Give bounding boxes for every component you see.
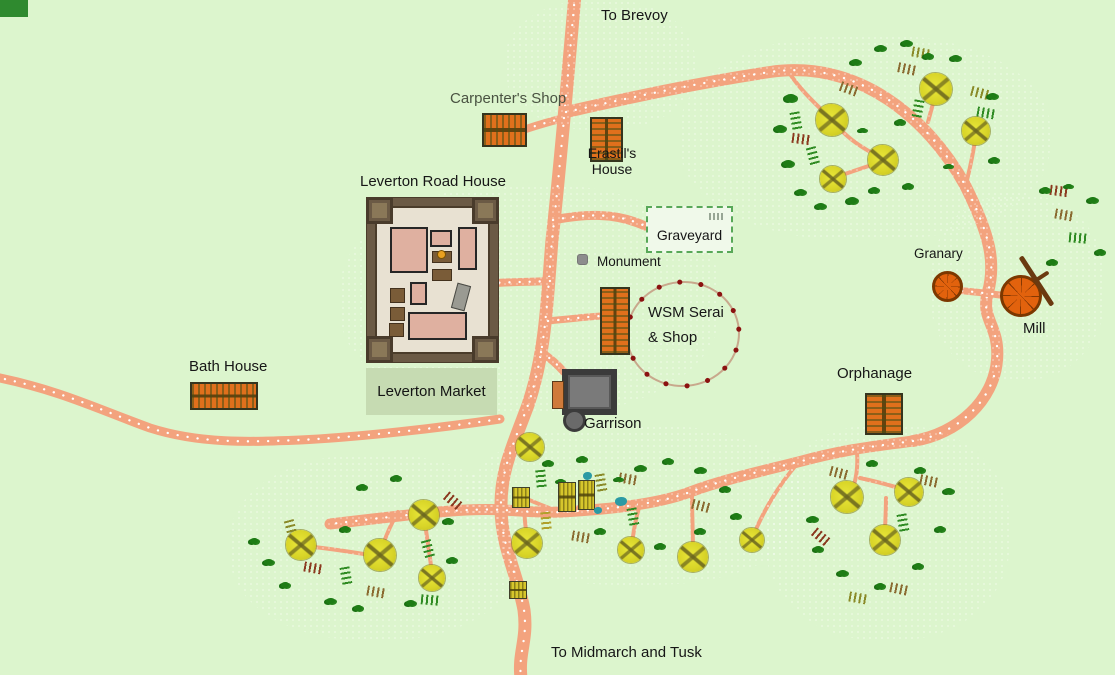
bush-icon: [1088, 197, 1097, 203]
label-monument: Monument: [597, 254, 661, 269]
garrison-round-tower: [563, 409, 586, 432]
tree-icon: [419, 565, 445, 591]
bush-icon: [783, 160, 793, 167]
bush-icon: [847, 197, 857, 204]
bush-icon: [341, 526, 349, 532]
bush-icon: [544, 460, 552, 466]
tree-icon: [870, 525, 900, 555]
bush-icon: [936, 526, 944, 532]
bush-icon: [444, 518, 452, 524]
granary-icon: [932, 271, 963, 302]
bush-icon: [392, 475, 400, 481]
roadhouse-room: [390, 227, 428, 273]
crop-rows-icon: [421, 594, 440, 606]
leverton-market-label: Leverton Market: [377, 383, 485, 400]
tree-icon: [740, 528, 764, 552]
bush-icon: [990, 157, 998, 163]
leverton-town-map: Leverton Market Graveyard To Brevoy Carp…: [0, 0, 1115, 675]
label-granary: Granary: [914, 246, 963, 261]
bush-icon: [775, 125, 785, 132]
bush-icon: [326, 598, 335, 604]
graveyard-label: Graveyard: [648, 227, 731, 243]
bush-icon: [578, 456, 586, 462]
label-leverton-road-house: Leverton Road House: [360, 174, 506, 191]
leverton-market-area: Leverton Market: [366, 368, 497, 415]
tombstone-mark: [721, 213, 723, 220]
roadhouse-tower-se: [472, 336, 499, 363]
label-wsm-serai-line2: & Shop: [648, 325, 724, 350]
tombstone-mark: [709, 213, 711, 220]
bush-icon: [876, 45, 885, 51]
bush-icon: [838, 570, 847, 576]
carpenters-shop-building: [482, 113, 527, 147]
bush-icon: [732, 513, 740, 519]
farm-cottage: [578, 480, 595, 510]
garrison-leanto: [552, 381, 564, 409]
tree-icon: [618, 537, 644, 563]
bush-icon: [896, 119, 904, 125]
roadhouse-tower-ne: [472, 197, 499, 224]
label-bath-house: Bath House: [189, 359, 267, 376]
roadhouse-room: [408, 312, 467, 340]
tree-icon: [820, 166, 846, 192]
bush-icon: [814, 546, 822, 552]
label-erastils-house-line1: Erastil's: [567, 146, 657, 162]
graveyard-area: Graveyard: [646, 206, 733, 253]
crop-rows-icon: [535, 470, 547, 489]
bush-icon: [944, 488, 953, 494]
bush-icon: [636, 465, 645, 471]
farm-cottage: [512, 487, 530, 508]
tombstone-icons: [709, 213, 723, 220]
bush-icon: [596, 528, 604, 534]
tree-icon: [962, 117, 990, 145]
roadhouse-bench: [390, 288, 405, 303]
bush-icon: [870, 187, 878, 193]
roadhouse-room: [430, 230, 452, 247]
label-carpenters-shop: Carpenter's Shop: [450, 91, 566, 108]
roadhouse-tower-sw: [366, 336, 393, 363]
label-erastils-house: Erastil's House: [567, 146, 657, 177]
tree-icon: [409, 500, 439, 530]
bush-icon: [796, 189, 805, 195]
bush-icon: [951, 55, 960, 61]
roadhouse-table: [432, 269, 452, 281]
bush-icon: [916, 467, 924, 473]
label-to-brevoy: To Brevoy: [601, 8, 668, 25]
bush-icon: [851, 59, 860, 65]
bush-icon: [1041, 187, 1049, 193]
label-mill: Mill: [1023, 321, 1046, 338]
bush-icon: [988, 93, 997, 99]
tree-icon: [678, 542, 708, 572]
bush-icon: [448, 557, 456, 563]
label-garrison: Garrison: [584, 416, 642, 433]
tombstone-mark: [713, 213, 715, 220]
farm-cottage: [509, 581, 527, 599]
bush-icon: [816, 203, 825, 209]
bush-icon: [358, 484, 366, 490]
bush-icon: [1048, 259, 1056, 265]
tree-icon: [512, 528, 542, 558]
bush-icon: [1096, 249, 1104, 255]
wsm-serai-building: [600, 287, 630, 355]
roadhouse-bench: [390, 307, 405, 321]
tree-icon: [516, 433, 544, 461]
tree-icon: [816, 104, 848, 136]
tree-icon: [286, 530, 316, 560]
bush-icon: [924, 53, 932, 59]
farm-cottage: [558, 482, 576, 512]
bush-icon: [868, 460, 876, 466]
roadhouse-firepit-icon: [437, 250, 446, 259]
bush-icon: [264, 559, 273, 565]
tree-icon: [364, 539, 396, 571]
garrison-building: [562, 369, 617, 415]
bush-icon: [250, 538, 258, 544]
bush-icon: [876, 583, 884, 589]
bush-icon: [406, 600, 415, 606]
bush-icon: [785, 94, 796, 102]
tombstone-mark: [717, 213, 719, 220]
bush-icon: [354, 605, 362, 611]
monument-icon: [578, 255, 587, 264]
tree-icon: [920, 73, 952, 105]
label-to-midmarch: To Midmarch and Tusk: [551, 645, 702, 662]
bath-house-building: [190, 382, 258, 410]
roadhouse-room: [410, 282, 427, 305]
orphanage-building: [865, 393, 903, 435]
crop-rows-icon: [1069, 232, 1088, 244]
bush-icon: [656, 543, 664, 549]
label-erastils-house-line2: House: [567, 162, 657, 178]
crop-rows-icon: [540, 512, 552, 531]
tree-icon: [831, 481, 863, 513]
tree-icon: [868, 145, 898, 175]
roadhouse-tower-nw: [366, 197, 393, 224]
label-wsm-serai-line1: WSM Serai: [648, 300, 724, 325]
label-wsm-serai: WSM Serai & Shop: [648, 300, 724, 350]
roadhouse-bench: [389, 323, 404, 337]
bush-icon: [664, 458, 672, 464]
roadhouse-room: [458, 227, 477, 270]
leverton-road-house-building: [367, 198, 498, 362]
tree-icon: [895, 478, 923, 506]
bush-icon: [696, 528, 704, 534]
bush-icon: [914, 563, 922, 569]
bush-icon: [904, 183, 912, 189]
bush-icon: [281, 582, 289, 588]
bush-icon: [696, 467, 705, 473]
bush-icon: [902, 40, 911, 46]
bush-icon: [721, 486, 729, 492]
bush-icon: [808, 516, 817, 522]
roadhouse-bedroll: [451, 283, 471, 312]
label-orphanage: Orphanage: [837, 366, 912, 383]
